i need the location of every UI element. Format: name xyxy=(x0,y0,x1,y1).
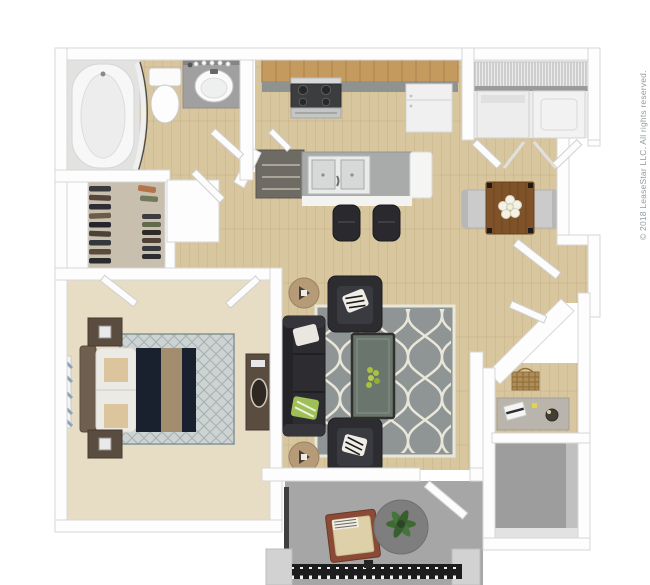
wall-wing-left xyxy=(483,368,495,550)
patio-post-left xyxy=(266,549,292,585)
island-double-sink xyxy=(308,156,370,194)
tub-faucet xyxy=(101,72,106,77)
coffee-table xyxy=(352,334,394,418)
wall-laundry-right xyxy=(588,48,600,140)
nightstand-lamp xyxy=(99,438,111,450)
wall-living-bottom-stub xyxy=(470,468,483,481)
patio-railing xyxy=(292,566,462,579)
storage-floor-edge xyxy=(495,528,578,538)
accent-pillow xyxy=(104,404,128,428)
wall-laundry-left xyxy=(462,48,474,140)
wall-bath-right xyxy=(240,60,253,180)
wall-living-right xyxy=(470,352,483,468)
wall-bedroom-top xyxy=(55,268,282,280)
bed-headboard xyxy=(80,346,96,432)
island-front-band xyxy=(302,196,412,206)
wall-top-main xyxy=(55,48,465,60)
sofa xyxy=(283,316,325,436)
dresser-tray xyxy=(251,379,267,407)
storage-wall-shade xyxy=(566,443,578,528)
dining-area xyxy=(462,182,558,234)
bed-runner xyxy=(161,348,182,432)
floor-plan-page: © 2018 LeaseStar LLC. All rights reserve… xyxy=(0,0,650,585)
wall-wing-right xyxy=(578,293,590,550)
armchair-bottom xyxy=(328,418,382,474)
wall-basket xyxy=(512,369,539,391)
wall-bedroom-bottom xyxy=(55,520,282,532)
bar-stool xyxy=(333,205,360,241)
stove xyxy=(291,78,341,118)
patio-railing-post xyxy=(364,560,373,568)
dining-chair-left-back xyxy=(462,190,468,228)
island-end-cap xyxy=(410,152,432,198)
washer-panel xyxy=(481,95,525,103)
wall-desk-storage-divider xyxy=(492,433,590,443)
dresser xyxy=(246,354,272,430)
wire-shelf-bar xyxy=(474,86,588,91)
side-table-top xyxy=(289,278,319,308)
wall-top-laundry xyxy=(462,48,600,60)
toilet-tank xyxy=(149,68,181,86)
dresser-item xyxy=(251,360,265,367)
wall-living-bottom xyxy=(262,468,420,481)
wall-bedroom-right xyxy=(270,268,282,520)
vanity-sink-basin xyxy=(201,78,227,98)
wire-shelf xyxy=(474,62,588,88)
copyright-text: © 2018 LeaseStar LLC. All rights reserve… xyxy=(638,70,648,240)
toilet-bowl xyxy=(151,85,179,123)
wall-closet-left xyxy=(67,182,88,268)
storage-floor xyxy=(495,443,578,538)
island-open-shelf xyxy=(256,150,304,198)
accent-pillow xyxy=(104,358,128,382)
kitchen-island xyxy=(234,148,432,206)
patio-lounge-chair xyxy=(325,509,380,563)
sticky-note xyxy=(532,403,537,408)
wall-wing-bottom xyxy=(483,538,590,550)
nightstand-lamp xyxy=(99,326,111,338)
refrigerator xyxy=(406,84,452,132)
floor-plan-svg xyxy=(0,0,650,585)
bathtub-basin xyxy=(81,74,125,158)
bar-stool xyxy=(373,205,400,241)
living-room xyxy=(282,276,454,474)
armchair-top xyxy=(328,276,382,332)
patio-railing-top xyxy=(292,564,462,567)
closet-rack-left xyxy=(89,186,111,264)
wall-bath-bottom xyxy=(55,170,170,182)
wall-left-outer xyxy=(55,48,67,532)
vanity-faucet xyxy=(210,69,218,74)
